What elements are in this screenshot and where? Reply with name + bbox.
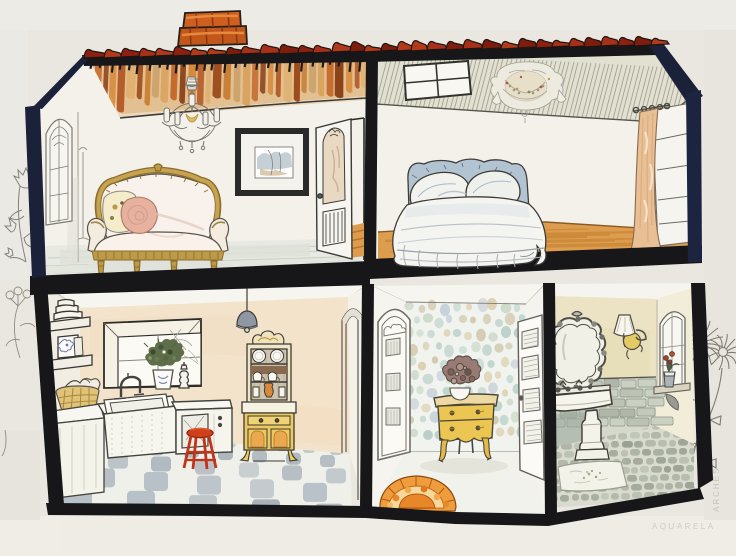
svg-text:AQUARELA: AQUARELA xyxy=(652,522,716,531)
svg-text:ARCHES: ARCHES xyxy=(712,467,721,512)
